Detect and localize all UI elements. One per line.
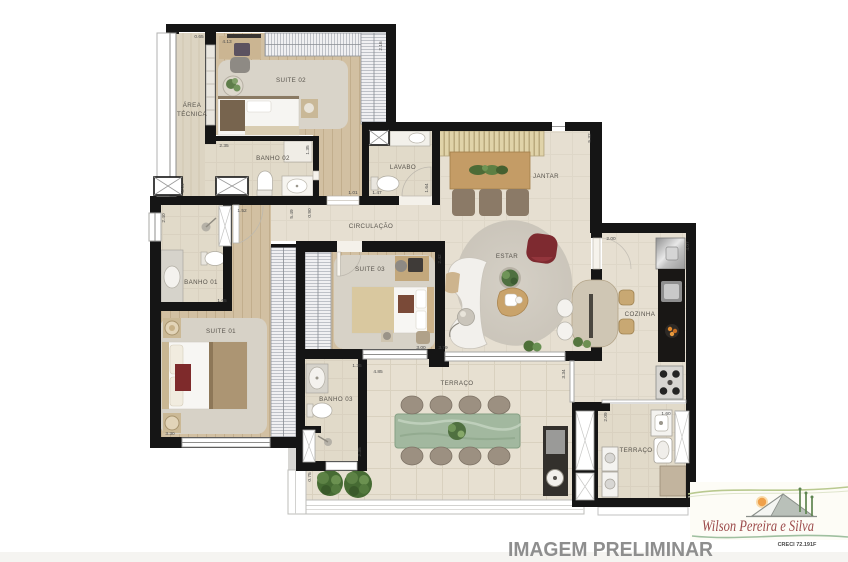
svg-text:BANHO 03: BANHO 03 [319, 396, 353, 403]
svg-text:Wilson Pereira e Silva: Wilson Pereira e Silva [702, 518, 814, 535]
svg-text:ÁREA: ÁREA [183, 102, 202, 109]
svg-text:3.79: 3.79 [438, 345, 448, 351]
svg-text:0.90: 0.90 [307, 208, 313, 218]
svg-text:2.40: 2.40 [161, 213, 167, 223]
svg-text:3.94: 3.94 [180, 183, 186, 193]
svg-text:CRECI 72.191F: CRECI 72.191F [778, 542, 817, 548]
svg-text:1.35: 1.35 [305, 145, 311, 155]
svg-text:4.85: 4.85 [373, 369, 383, 375]
svg-text:TÉCNICA: TÉCNICA [177, 111, 207, 118]
svg-text:COZINHA: COZINHA [625, 311, 656, 318]
svg-text:1.47: 1.47 [372, 190, 382, 196]
svg-text:ESTAR: ESTAR [496, 253, 518, 260]
svg-text:1.60: 1.60 [661, 411, 671, 417]
svg-text:1.64: 1.64 [424, 183, 430, 193]
svg-text:2.09: 2.09 [603, 412, 609, 422]
svg-text:3.30: 3.30 [165, 431, 175, 437]
svg-text:1.01: 1.01 [348, 190, 358, 196]
svg-text:CIRCULAÇÃO: CIRCULAÇÃO [349, 223, 394, 230]
svg-text:5.49: 5.49 [289, 209, 295, 219]
svg-text:0.65: 0.65 [194, 34, 204, 40]
svg-text:SUITE 03: SUITE 03 [355, 266, 385, 273]
svg-text:IMAGEM PRELIMINAR: IMAGEM PRELIMINAR [508, 539, 714, 561]
svg-text:3.34: 3.34 [561, 369, 567, 379]
svg-text:2.35: 2.35 [357, 447, 363, 457]
svg-text:SUITE 01: SUITE 01 [206, 328, 236, 335]
svg-text:BANHO 01: BANHO 01 [184, 279, 218, 286]
svg-text:3.00: 3.00 [416, 345, 426, 351]
svg-text:2.35: 2.35 [219, 143, 229, 149]
svg-text:TERRAÇO: TERRAÇO [619, 447, 652, 454]
svg-text:1.35: 1.35 [352, 363, 362, 369]
svg-text:TERRAÇO: TERRAÇO [440, 380, 473, 387]
svg-text:2.00: 2.00 [606, 236, 616, 242]
svg-text:1.65: 1.65 [217, 298, 227, 304]
svg-text:0.75: 0.75 [307, 472, 313, 482]
svg-text:5.32: 5.32 [587, 133, 593, 143]
svg-text:LAVABO: LAVABO [390, 164, 416, 171]
svg-text:2.42: 2.42 [437, 254, 443, 264]
svg-text:4.13: 4.13 [222, 39, 232, 45]
svg-text:1.52: 1.52 [237, 208, 247, 214]
svg-text:BANHO 02: BANHO 02 [256, 155, 290, 162]
svg-text:JANTAR: JANTAR [533, 173, 559, 180]
svg-text:SUITE 02: SUITE 02 [276, 77, 306, 84]
svg-text:2.16: 2.16 [378, 41, 384, 51]
svg-text:4.07: 4.07 [685, 241, 691, 251]
